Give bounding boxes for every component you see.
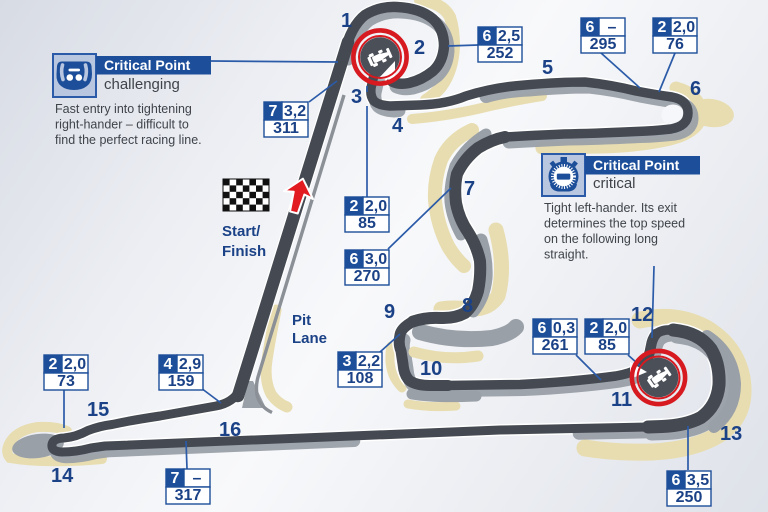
svg-text:317: 317 [175, 487, 202, 504]
svg-text:–: – [608, 19, 617, 36]
svg-text:0,3: 0,3 [553, 320, 575, 337]
svg-text:find the perfect racing line.: find the perfect racing line. [55, 133, 202, 147]
svg-text:10: 10 [420, 358, 442, 380]
svg-text:2,2: 2,2 [358, 353, 380, 370]
svg-text:Critical Point: Critical Point [104, 57, 191, 73]
svg-text:16: 16 [219, 419, 241, 441]
svg-text:Start/: Start/ [222, 223, 261, 240]
svg-text:2,0: 2,0 [64, 356, 86, 373]
svg-text:252: 252 [487, 45, 514, 62]
svg-text:2: 2 [414, 37, 425, 59]
svg-text:73: 73 [57, 373, 75, 390]
svg-text:2,0: 2,0 [605, 320, 627, 337]
svg-text:2: 2 [49, 356, 58, 373]
svg-text:Finish: Finish [222, 243, 266, 260]
svg-text:11: 11 [611, 389, 632, 411]
svg-text:determines the top speed: determines the top speed [544, 217, 685, 231]
svg-text:3,5: 3,5 [687, 472, 709, 489]
svg-text:108: 108 [347, 370, 374, 387]
svg-text:6: 6 [538, 320, 547, 337]
svg-text:Tight left-hander. Its exit: Tight left-hander. Its exit [544, 201, 677, 215]
svg-text:2,0: 2,0 [673, 19, 695, 36]
svg-text:13: 13 [720, 423, 742, 445]
svg-text:Lane: Lane [292, 330, 327, 347]
svg-text:2: 2 [350, 198, 359, 215]
svg-text:3,0: 3,0 [365, 251, 387, 268]
svg-text:159: 159 [168, 373, 195, 390]
svg-text:–: – [193, 470, 202, 487]
svg-text:6: 6 [350, 251, 359, 268]
svg-text:Fast entry into tightening: Fast entry into tightening [55, 102, 192, 116]
svg-text:250: 250 [676, 489, 703, 506]
svg-text:2,9: 2,9 [179, 356, 201, 373]
svg-text:7: 7 [171, 470, 180, 487]
svg-text:14: 14 [51, 465, 74, 487]
svg-text:15: 15 [87, 399, 109, 421]
svg-text:7: 7 [269, 103, 278, 120]
svg-text:straight.: straight. [544, 248, 588, 262]
svg-text:261: 261 [542, 337, 569, 354]
svg-text:Critical Point: Critical Point [593, 157, 680, 173]
svg-text:6: 6 [672, 472, 681, 489]
svg-text:4: 4 [392, 115, 404, 137]
svg-text:6: 6 [586, 19, 595, 36]
svg-text:311: 311 [273, 120, 299, 137]
svg-text:3: 3 [343, 353, 352, 370]
svg-text:5: 5 [542, 57, 553, 79]
svg-text:270: 270 [354, 268, 381, 285]
svg-text:6: 6 [690, 78, 701, 100]
svg-text:295: 295 [590, 36, 617, 53]
svg-text:85: 85 [358, 215, 376, 232]
svg-text:challenging: challenging [104, 76, 180, 93]
svg-text:2,5: 2,5 [498, 28, 520, 45]
svg-text:2: 2 [590, 320, 599, 337]
svg-text:2: 2 [658, 19, 667, 36]
svg-text:3: 3 [351, 86, 362, 108]
svg-text:6: 6 [483, 28, 492, 45]
svg-text:right-hander – difficult to: right-hander – difficult to [55, 118, 189, 132]
svg-text:76: 76 [666, 36, 684, 53]
svg-text:on the following long: on the following long [544, 232, 658, 246]
svg-text:7: 7 [464, 178, 475, 200]
svg-text:3,2: 3,2 [284, 103, 306, 120]
svg-text:9: 9 [384, 301, 395, 323]
svg-text:2,0: 2,0 [365, 198, 387, 215]
svg-text:8: 8 [462, 295, 473, 317]
svg-text:Pit: Pit [292, 312, 311, 329]
svg-text:1: 1 [341, 10, 352, 32]
svg-text:85: 85 [598, 337, 616, 354]
svg-text:critical: critical [593, 175, 636, 192]
svg-text:4: 4 [164, 356, 173, 373]
svg-text:12: 12 [631, 304, 653, 326]
